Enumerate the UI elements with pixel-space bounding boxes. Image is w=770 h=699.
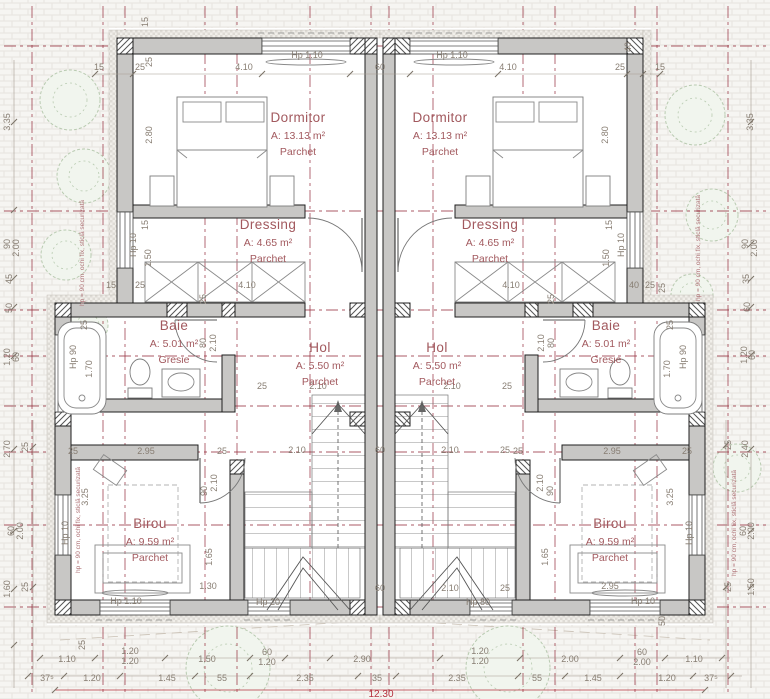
dimension-label: 1.10 (58, 654, 76, 664)
dimension-label: 2.10 (441, 583, 459, 593)
dimension-label: 1.20 (658, 673, 676, 683)
dimension-label: 1.65 (204, 548, 214, 566)
dimension-label: 55 (217, 673, 227, 683)
dimension-label: 25 (135, 62, 145, 72)
dimension-label: 2.10 (209, 474, 219, 492)
dimension-label: 55 (532, 673, 542, 683)
room-name-label: Dressing (462, 217, 518, 232)
dimension-label: 35 (741, 274, 751, 284)
dimension-label: 40 (623, 42, 633, 52)
dimension-label: 80 (198, 338, 208, 348)
dimension-label: 25 (144, 57, 154, 67)
dimension-label: 2.70 (2, 440, 12, 458)
room-area-label: A: 5.50 m² (296, 360, 345, 372)
window-note-label: hp = 90 cm, ochi fix, sticlă securizată (79, 200, 86, 306)
toilet-icon (128, 359, 152, 398)
dimension-label: Hp 1.10 (436, 50, 468, 60)
floor-plan-svg: 152515254.10Hp 1.1060Hp 1.104.102515402.… (0, 0, 770, 699)
dimension-label: 2.95 (137, 446, 155, 456)
tree-icon (686, 189, 738, 241)
dimension-label: 1.30 (199, 581, 217, 591)
dimension-label: 2.80 (600, 126, 610, 144)
dimension-label: 60 (375, 583, 385, 593)
dimension-label: 45 (4, 274, 14, 284)
dimension-label: 25 (615, 62, 625, 72)
dimension-label: 2.10 (288, 445, 306, 455)
dimension-label: 25 (20, 442, 30, 452)
dimension-label: 15 (106, 280, 116, 290)
dimension-label: 2.00 (11, 239, 21, 257)
room-area-label: A: 9.59 m² (126, 536, 175, 548)
dimension-label: 1.20 (471, 646, 489, 656)
dimension-label: 1.50 (746, 578, 756, 596)
room-floor-label: Parchet (419, 376, 455, 388)
dimension-label: 1.50 (198, 654, 216, 664)
dimension-label: 1.20 (83, 673, 101, 683)
dimension-label: 90 (545, 486, 555, 496)
dimension-label: 2.90 (353, 654, 371, 664)
dimension-label: Hp 90 (68, 345, 78, 369)
dimension-label: 3.35 (745, 113, 755, 131)
dimension-label: 25 (257, 381, 267, 391)
dimension-label: 25 (79, 320, 89, 330)
dimension-label: 25 (513, 446, 523, 456)
dimension-label: 2.40 (740, 440, 750, 458)
dimension-label: 25 (68, 446, 78, 456)
dimension-label: 2.95 (601, 581, 619, 591)
dimension-label: 25 (665, 320, 675, 330)
room-floor-label: Parchet (250, 253, 286, 265)
room-area-label: A: 5.50 m² (413, 360, 462, 372)
dimension-label: 80 (546, 338, 556, 348)
dimension-label: 2.00 (561, 654, 579, 664)
dimension-label: 2.35 (448, 673, 466, 683)
dimension-label: 25 (645, 280, 655, 290)
dimension-label: 1.70 (84, 360, 94, 378)
dimension-label: 1.60 (2, 580, 12, 598)
dimension-label: Hp 10 (60, 521, 70, 545)
dimension-label: 4.10 (235, 62, 253, 72)
dimension-label: Hp 80 (466, 597, 490, 607)
room-name-label: Birou (133, 516, 167, 531)
dimension-label: 37⁵ (40, 673, 54, 683)
dimension-label: 2.00 (749, 239, 759, 257)
room-area-label: A: 4.65 m² (244, 237, 293, 249)
dimension-label: 1.65 (540, 548, 550, 566)
dimension-label: Hp 10 (631, 596, 655, 606)
dimension-label: Hp 20 (256, 597, 280, 607)
dimension-label: 15 (94, 62, 104, 72)
dimension-label: 2.10 (441, 445, 459, 455)
dimension-label: 1.45 (158, 673, 176, 683)
dimension-label: 25 (500, 583, 510, 593)
room-floor-label: Parchet (592, 552, 628, 564)
room-name-label: Baie (592, 318, 621, 333)
bathtub-icon (58, 322, 106, 414)
dimension-label: 15 (604, 220, 614, 230)
room-floor-label: Parchet (472, 253, 508, 265)
room-area-label: A: 5.01 m² (582, 338, 631, 350)
dimension-label: 1.70 (662, 360, 672, 378)
dimension-label: 60 (742, 302, 752, 312)
dimension-label: Hp 10 (128, 233, 138, 257)
room-name-label: Dressing (240, 217, 296, 232)
dimension-label: 2.95 (603, 446, 621, 456)
dimension-label: 35 (372, 673, 382, 683)
dimension-label: 15 (655, 62, 665, 72)
room-name-label: Dormitor (271, 110, 326, 125)
dimension-label: 2.35 (296, 673, 314, 683)
dimension-label: 15 (140, 220, 150, 230)
dimension-label: 1.50 (143, 249, 153, 267)
dimension-label: 2.10 (536, 334, 546, 352)
tree-icon (40, 70, 100, 130)
dimension-label: 25 (657, 283, 667, 293)
dimension-label: 60 (747, 350, 757, 360)
dimension-label: 60 (375, 62, 385, 72)
dimension-label: 1.45 (584, 673, 602, 683)
room-name-label: Hol (426, 340, 447, 355)
dimension-label: 25 (723, 582, 733, 592)
dimension-label: 60 (375, 445, 385, 455)
dimension-label: 3.35 (2, 113, 12, 131)
window-note-label: hp = 90 cm, ochi fix, sticlă securizată (731, 470, 738, 576)
dimension-label: 25 (77, 640, 87, 650)
sink-icon (162, 369, 200, 397)
total-dimension-label: 12.30 (368, 689, 393, 699)
dimension-label: 90 (199, 486, 209, 496)
dimension-label: 25 (217, 446, 227, 456)
dimension-label: 4.10 (238, 280, 256, 290)
dimension-label: 1.20 (121, 646, 139, 656)
dimension-label: 2.00 (746, 522, 756, 540)
dimension-label: 4.10 (499, 62, 517, 72)
dimension-label: 25 (500, 445, 510, 455)
room-floor-label: Parchet (280, 146, 316, 158)
dimension-label: 40 (629, 280, 639, 290)
dimension-label: Hp 10 (684, 521, 694, 545)
room-name-label: Baie (160, 318, 189, 333)
tree-icon (665, 85, 725, 145)
room-name-label: Dormitor (413, 110, 468, 125)
room-area-label: A: 5.01 m² (150, 338, 199, 350)
dimension-label: 50 (4, 303, 14, 313)
dimension-label: 25 (20, 582, 30, 592)
dimension-label: 4.10 (502, 280, 520, 290)
room-area-label: A: 13.13 m² (271, 130, 326, 142)
dimension-label: 25 (682, 446, 692, 456)
room-area-label: A: 9.59 m² (586, 536, 635, 548)
floor-plan: 152515254.10Hp 1.1060Hp 1.104.102515402.… (0, 0, 770, 699)
dimension-label: 3.25 (665, 488, 675, 506)
dimension-label: 60 (637, 647, 647, 657)
dimension-label: 25 (502, 381, 512, 391)
room-floor-label: Parchet (302, 376, 338, 388)
dimension-label: 2.00 (633, 657, 651, 667)
window-note-label: hp = 90 cm, ochi fix, sticlă securizată (75, 467, 82, 573)
room-name-label: Birou (593, 516, 627, 531)
dimension-label: 1.20 (258, 657, 276, 667)
dimension-label: 2.00 (15, 522, 25, 540)
room-floor-label: Gresie (591, 354, 622, 366)
room-floor-label: Parchet (422, 146, 458, 158)
dimension-label: Hp 1.10 (291, 50, 323, 60)
room-area-label: A: 13.13 m² (413, 130, 468, 142)
room-name-label: Hol (309, 340, 330, 355)
window-note-label: hp = 90 cm, ochi fix, sticlă securizată (695, 195, 702, 301)
dimension-label: Hp 10 (616, 233, 626, 257)
dimension-label: 2.80 (144, 126, 154, 144)
dimension-label: 1.20 (121, 656, 139, 666)
dimension-label: 60 (11, 352, 21, 362)
room-area-label: A: 4.65 m² (466, 237, 515, 249)
room-floor-label: Parchet (132, 552, 168, 564)
dimension-label: 1.50 (601, 249, 611, 267)
dimension-label: 2.10 (208, 334, 218, 352)
dimension-label: 15 (140, 17, 150, 27)
dimension-label: 2.10 (535, 474, 545, 492)
dimension-label: 1.20 (471, 656, 489, 666)
dimension-label: Hp 1.10 (110, 596, 142, 606)
dimension-label: 25 (198, 294, 208, 304)
dimension-label: Hp 90 (678, 345, 688, 369)
dimension-label: 50 (657, 616, 667, 626)
room-floor-label: Gresie (159, 354, 190, 366)
dimension-label: 1.10 (685, 654, 703, 664)
dimension-label: 60 (262, 647, 272, 657)
dimension-label: 25 (135, 280, 145, 290)
dimension-label: 25 (546, 294, 556, 304)
dimension-label: 25 (723, 440, 733, 450)
dimension-label: 37⁵ (704, 673, 718, 683)
